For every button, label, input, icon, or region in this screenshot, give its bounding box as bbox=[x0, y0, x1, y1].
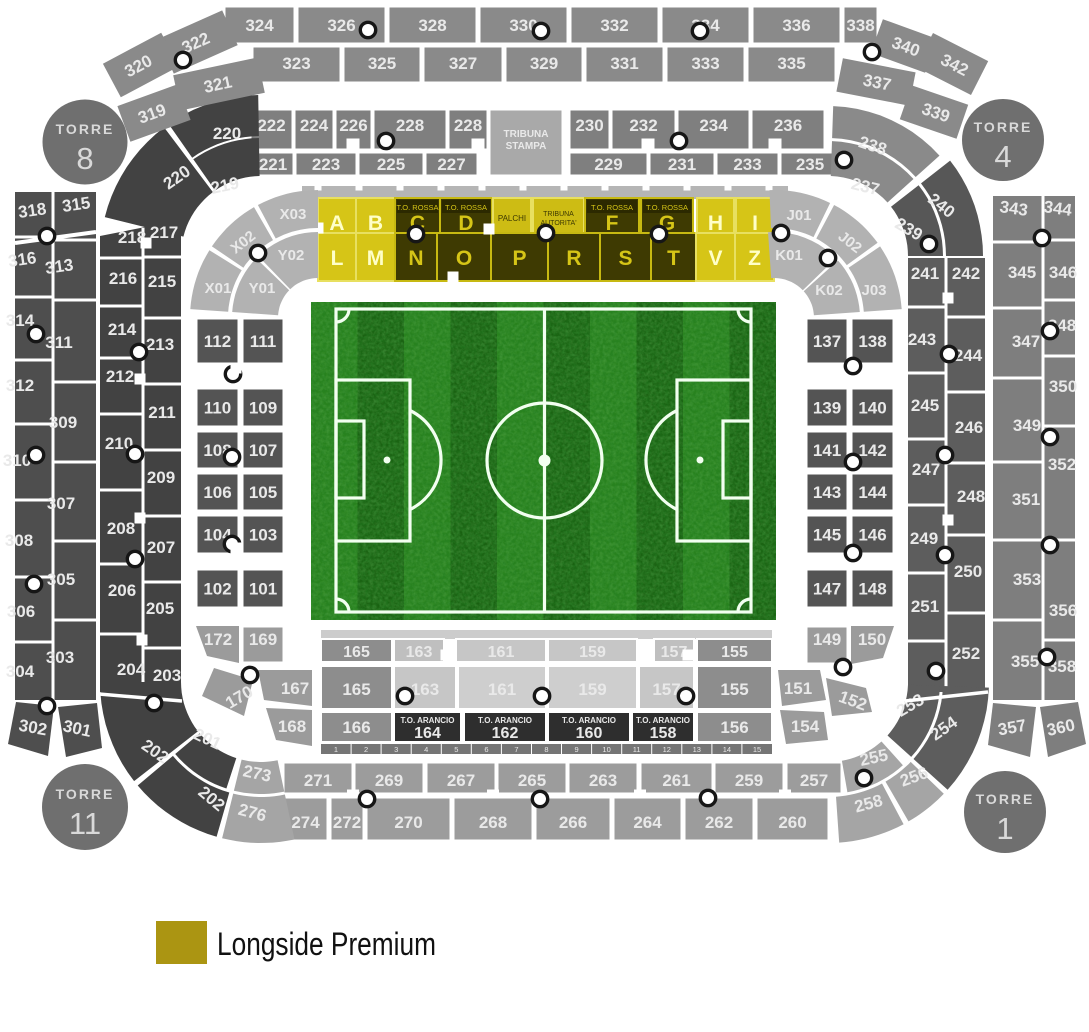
svg-text:251: 251 bbox=[911, 597, 939, 616]
svg-text:226: 226 bbox=[339, 116, 367, 135]
svg-text:228: 228 bbox=[454, 116, 482, 135]
svg-text:262: 262 bbox=[705, 813, 733, 832]
svg-text:T.O. ARANCIO: T.O. ARANCIO bbox=[478, 716, 532, 725]
svg-text:102: 102 bbox=[203, 580, 231, 599]
svg-text:212: 212 bbox=[106, 367, 134, 386]
svg-text:105: 105 bbox=[249, 483, 277, 502]
svg-text:M: M bbox=[367, 247, 385, 270]
svg-text:106: 106 bbox=[203, 483, 231, 502]
svg-text:A: A bbox=[329, 212, 344, 235]
svg-text:PALCHI: PALCHI bbox=[498, 214, 526, 223]
svg-text:161: 161 bbox=[488, 680, 516, 699]
svg-text:7: 7 bbox=[514, 745, 518, 754]
svg-text:250: 250 bbox=[954, 562, 982, 581]
svg-text:TORRE: TORRE bbox=[974, 119, 1033, 135]
svg-text:163: 163 bbox=[406, 644, 433, 661]
svg-text:13: 13 bbox=[693, 745, 701, 754]
svg-text:346: 346 bbox=[1049, 263, 1077, 282]
svg-text:228: 228 bbox=[396, 116, 424, 135]
svg-text:215: 215 bbox=[148, 272, 176, 291]
svg-text:165: 165 bbox=[343, 644, 370, 661]
svg-text:143: 143 bbox=[813, 483, 841, 502]
svg-text:356: 356 bbox=[1049, 601, 1077, 620]
svg-text:306: 306 bbox=[7, 602, 35, 621]
svg-text:X01: X01 bbox=[205, 280, 232, 297]
svg-text:352: 352 bbox=[1048, 455, 1076, 474]
svg-text:303: 303 bbox=[46, 648, 74, 667]
svg-text:8: 8 bbox=[76, 141, 93, 176]
svg-text:166: 166 bbox=[342, 718, 370, 737]
svg-text:TORRE: TORRE bbox=[56, 121, 115, 137]
svg-text:344: 344 bbox=[1042, 197, 1073, 220]
svg-text:158: 158 bbox=[650, 725, 677, 742]
svg-text:161: 161 bbox=[488, 644, 515, 661]
svg-text:4: 4 bbox=[424, 745, 428, 754]
svg-text:261: 261 bbox=[662, 771, 690, 790]
svg-text:227: 227 bbox=[437, 155, 465, 174]
svg-text:15: 15 bbox=[753, 745, 761, 754]
svg-text:223: 223 bbox=[312, 155, 340, 174]
svg-text:TRIBUNA: TRIBUNA bbox=[504, 129, 549, 140]
svg-text:220: 220 bbox=[213, 124, 241, 143]
svg-text:213: 213 bbox=[146, 335, 174, 354]
svg-text:269: 269 bbox=[375, 771, 403, 790]
svg-text:155: 155 bbox=[720, 680, 748, 699]
svg-text:H: H bbox=[708, 212, 723, 235]
svg-text:Y01: Y01 bbox=[249, 280, 276, 297]
svg-text:156: 156 bbox=[720, 718, 748, 737]
svg-text:242: 242 bbox=[952, 264, 980, 283]
svg-text:233: 233 bbox=[733, 155, 761, 174]
svg-text:T.O. ROSSA: T.O. ROSSA bbox=[646, 203, 688, 212]
svg-text:323: 323 bbox=[282, 54, 310, 73]
svg-text:232: 232 bbox=[629, 116, 657, 135]
svg-text:K01: K01 bbox=[775, 247, 803, 264]
svg-text:204: 204 bbox=[117, 660, 146, 679]
svg-text:J01: J01 bbox=[786, 207, 811, 224]
svg-text:162: 162 bbox=[492, 725, 519, 742]
svg-text:I: I bbox=[752, 212, 758, 235]
svg-text:326: 326 bbox=[327, 16, 355, 35]
svg-text:103: 103 bbox=[249, 526, 277, 545]
svg-text:1: 1 bbox=[334, 745, 338, 754]
svg-text:14: 14 bbox=[723, 745, 731, 754]
svg-text:11: 11 bbox=[633, 745, 641, 754]
svg-text:3: 3 bbox=[394, 745, 398, 754]
svg-text:336: 336 bbox=[782, 16, 810, 35]
svg-text:259: 259 bbox=[735, 771, 763, 790]
svg-text:9: 9 bbox=[575, 745, 579, 754]
svg-text:217: 217 bbox=[150, 223, 178, 242]
svg-text:110: 110 bbox=[204, 399, 231, 418]
svg-text:235: 235 bbox=[796, 155, 824, 174]
svg-text:145: 145 bbox=[813, 526, 841, 545]
svg-text:159: 159 bbox=[579, 644, 606, 661]
svg-text:155: 155 bbox=[721, 644, 748, 661]
svg-text:O: O bbox=[456, 247, 472, 270]
svg-text:252: 252 bbox=[952, 644, 980, 663]
svg-text:164: 164 bbox=[414, 725, 441, 742]
svg-text:K02: K02 bbox=[815, 282, 843, 299]
svg-text:345: 345 bbox=[1008, 263, 1036, 282]
svg-text:260: 260 bbox=[778, 813, 806, 832]
svg-text:324: 324 bbox=[245, 16, 274, 35]
svg-text:355: 355 bbox=[1011, 652, 1039, 671]
svg-text:230: 230 bbox=[575, 116, 603, 135]
svg-text:T.O. ARANCIO: T.O. ARANCIO bbox=[636, 716, 690, 725]
svg-text:8: 8 bbox=[544, 745, 548, 754]
svg-text:2: 2 bbox=[364, 745, 368, 754]
svg-text:139: 139 bbox=[813, 399, 841, 418]
svg-text:349: 349 bbox=[1013, 416, 1041, 435]
svg-text:245: 245 bbox=[911, 396, 939, 415]
svg-text:222: 222 bbox=[257, 116, 285, 135]
svg-text:248: 248 bbox=[957, 487, 985, 506]
svg-text:X03: X03 bbox=[280, 206, 307, 223]
svg-text:266: 266 bbox=[559, 813, 587, 832]
svg-text:101: 101 bbox=[249, 580, 277, 599]
svg-text:D: D bbox=[458, 212, 473, 235]
svg-text:329: 329 bbox=[530, 54, 558, 73]
svg-text:343: 343 bbox=[998, 197, 1029, 220]
svg-text:T.O. ARANCIO: T.O. ARANCIO bbox=[562, 716, 616, 725]
svg-text:263: 263 bbox=[589, 771, 617, 790]
svg-text:325: 325 bbox=[368, 54, 396, 73]
svg-text:111: 111 bbox=[250, 332, 277, 351]
svg-text:150: 150 bbox=[858, 630, 886, 649]
svg-text:264: 264 bbox=[633, 813, 662, 832]
svg-text:243: 243 bbox=[908, 330, 936, 349]
svg-text:TORRE: TORRE bbox=[976, 791, 1035, 807]
svg-text:313: 313 bbox=[44, 255, 75, 278]
svg-text:11: 11 bbox=[69, 806, 101, 841]
svg-text:246: 246 bbox=[955, 418, 983, 437]
svg-text:312: 312 bbox=[6, 376, 34, 395]
svg-text:T: T bbox=[667, 247, 680, 270]
svg-text:5: 5 bbox=[454, 745, 458, 754]
svg-text:T.O. ARANCIO: T.O. ARANCIO bbox=[401, 716, 455, 725]
svg-text:163: 163 bbox=[411, 680, 439, 699]
svg-text:10: 10 bbox=[602, 745, 610, 754]
svg-text:231: 231 bbox=[668, 155, 696, 174]
svg-text:274: 274 bbox=[291, 813, 320, 832]
svg-text:332: 332 bbox=[600, 16, 628, 35]
svg-text:144: 144 bbox=[858, 483, 887, 502]
svg-text:J03: J03 bbox=[861, 282, 886, 299]
svg-text:107: 107 bbox=[249, 441, 277, 460]
svg-text:350: 350 bbox=[1049, 377, 1077, 396]
svg-text:146: 146 bbox=[858, 526, 886, 545]
svg-text:268: 268 bbox=[479, 813, 507, 832]
svg-text:241: 241 bbox=[911, 264, 939, 283]
svg-text:225: 225 bbox=[377, 155, 405, 174]
svg-text:F: F bbox=[606, 212, 619, 235]
svg-text:R: R bbox=[566, 247, 581, 270]
svg-text:154: 154 bbox=[791, 717, 820, 736]
svg-text:TORRE: TORRE bbox=[56, 786, 115, 802]
svg-text:271: 271 bbox=[304, 771, 332, 790]
svg-text:333: 333 bbox=[691, 54, 719, 73]
svg-text:221: 221 bbox=[259, 155, 287, 174]
svg-text:167: 167 bbox=[281, 679, 309, 698]
svg-text:4: 4 bbox=[994, 139, 1011, 174]
svg-text:272: 272 bbox=[333, 813, 361, 832]
svg-text:206: 206 bbox=[108, 581, 136, 600]
svg-text:141: 141 bbox=[813, 441, 841, 460]
svg-text:160: 160 bbox=[576, 725, 603, 742]
svg-text:311: 311 bbox=[45, 333, 72, 352]
svg-text:205: 205 bbox=[146, 599, 174, 618]
svg-text:224: 224 bbox=[300, 116, 329, 135]
svg-text:T.O. ROSSA: T.O. ROSSA bbox=[445, 203, 487, 212]
svg-text:12: 12 bbox=[663, 745, 671, 754]
svg-text:234: 234 bbox=[699, 116, 728, 135]
svg-text:208: 208 bbox=[107, 519, 135, 538]
svg-text:308: 308 bbox=[5, 531, 33, 550]
svg-text:309: 309 bbox=[49, 413, 77, 432]
svg-text:168: 168 bbox=[278, 717, 306, 736]
svg-text:157: 157 bbox=[652, 680, 680, 699]
svg-text:307: 307 bbox=[47, 494, 75, 513]
svg-text:6: 6 bbox=[484, 745, 488, 754]
svg-text:165: 165 bbox=[342, 680, 370, 699]
svg-text:142: 142 bbox=[858, 441, 886, 460]
svg-text:270: 270 bbox=[394, 813, 422, 832]
svg-text:211: 211 bbox=[148, 403, 175, 422]
svg-text:328: 328 bbox=[418, 16, 446, 35]
svg-text:327: 327 bbox=[449, 54, 477, 73]
svg-text:151: 151 bbox=[784, 679, 812, 698]
svg-text:216: 216 bbox=[109, 269, 137, 288]
svg-text:137: 137 bbox=[813, 332, 841, 351]
svg-text:304: 304 bbox=[6, 662, 35, 681]
svg-text:T.O. ROSSA: T.O. ROSSA bbox=[591, 203, 633, 212]
svg-text:T.O. ROSSA: T.O. ROSSA bbox=[396, 203, 438, 212]
svg-text:209: 209 bbox=[147, 468, 175, 487]
svg-text:315: 315 bbox=[61, 193, 92, 216]
svg-text:169: 169 bbox=[249, 630, 277, 649]
svg-text:305: 305 bbox=[47, 570, 75, 589]
svg-text:TRIBUNA: TRIBUNA bbox=[543, 211, 574, 218]
svg-text:P: P bbox=[512, 247, 526, 270]
svg-text:172: 172 bbox=[204, 630, 232, 649]
svg-text:140: 140 bbox=[858, 399, 886, 418]
svg-text:214: 214 bbox=[108, 320, 137, 339]
svg-text:147: 147 bbox=[813, 580, 841, 599]
svg-text:331: 331 bbox=[610, 54, 638, 73]
svg-text:236: 236 bbox=[774, 116, 802, 135]
svg-text:149: 149 bbox=[813, 630, 841, 649]
svg-text:249: 249 bbox=[910, 529, 938, 548]
svg-text:N: N bbox=[408, 247, 423, 270]
svg-text:351: 351 bbox=[1012, 490, 1040, 509]
svg-text:B: B bbox=[368, 212, 383, 235]
svg-text:138: 138 bbox=[858, 332, 886, 351]
svg-text:247: 247 bbox=[912, 460, 940, 479]
svg-text:257: 257 bbox=[800, 771, 828, 790]
svg-text:207: 207 bbox=[147, 538, 175, 557]
svg-text:V: V bbox=[708, 247, 722, 270]
svg-text:159: 159 bbox=[578, 680, 606, 699]
svg-text:335: 335 bbox=[777, 54, 805, 73]
svg-text:338: 338 bbox=[846, 16, 874, 35]
svg-text:267: 267 bbox=[447, 771, 475, 790]
svg-text:347: 347 bbox=[1012, 332, 1040, 351]
svg-text:318: 318 bbox=[17, 199, 48, 222]
svg-text:148: 148 bbox=[858, 580, 886, 599]
svg-text:Longside Premium: Longside Premium bbox=[217, 926, 436, 962]
svg-text:Y02: Y02 bbox=[278, 247, 305, 264]
svg-text:112: 112 bbox=[204, 332, 231, 351]
svg-text:1: 1 bbox=[996, 811, 1013, 846]
svg-text:STAMPA: STAMPA bbox=[506, 141, 547, 152]
svg-text:316: 316 bbox=[7, 248, 38, 271]
svg-text:Z: Z bbox=[748, 247, 761, 270]
svg-text:L: L bbox=[331, 247, 344, 270]
svg-text:265: 265 bbox=[518, 771, 546, 790]
svg-text:109: 109 bbox=[249, 399, 277, 418]
svg-text:229: 229 bbox=[594, 155, 622, 174]
svg-text:S: S bbox=[618, 247, 632, 270]
svg-text:353: 353 bbox=[1013, 570, 1041, 589]
